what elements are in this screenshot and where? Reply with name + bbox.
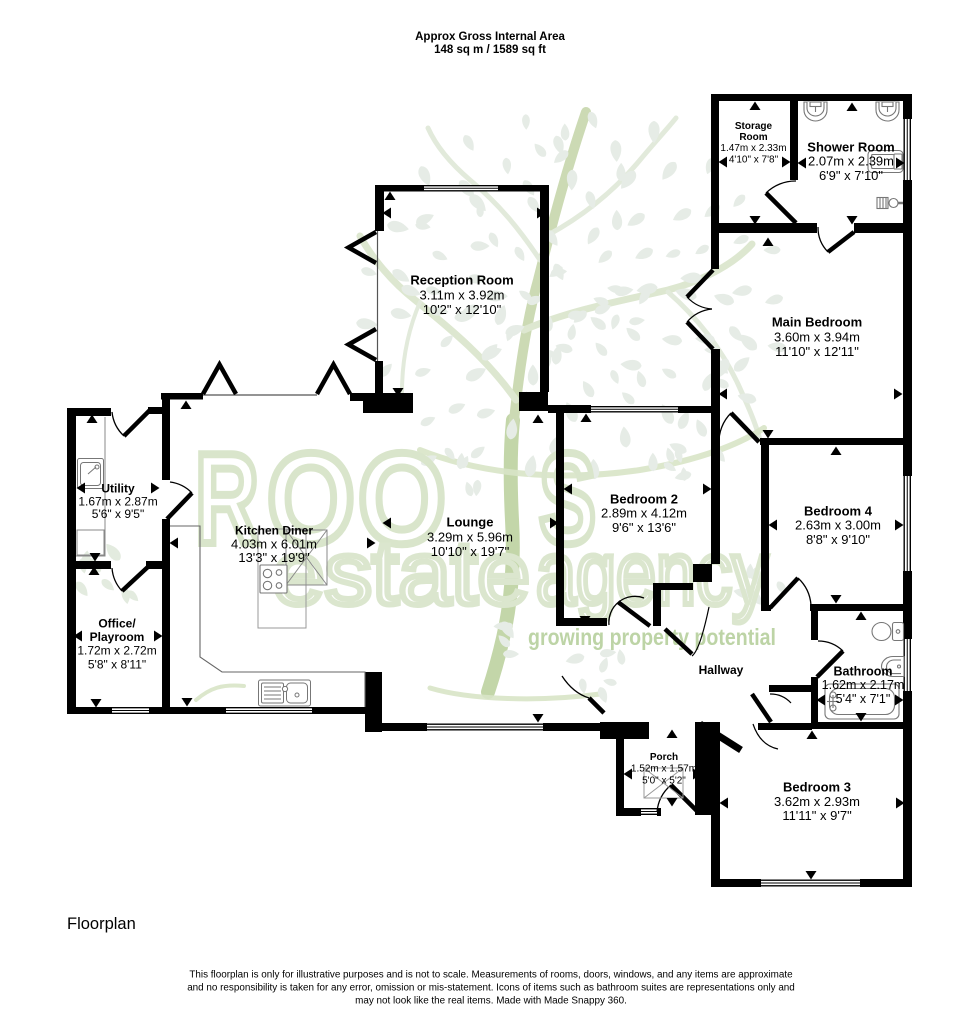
svg-text:Playroom: Playroom: [90, 630, 145, 644]
svg-text:1.62m x 2.17m: 1.62m x 2.17m: [822, 678, 905, 692]
svg-text:148 sq m / 1589 sq ft: 148 sq m / 1589 sq ft: [434, 44, 546, 56]
svg-text:Bedroom 2: Bedroom 2: [610, 492, 678, 507]
svg-text:Lounge: Lounge: [447, 515, 494, 530]
svg-text:Reception Room: Reception Room: [410, 273, 513, 288]
svg-text:1.47m x 2.33m: 1.47m x 2.33m: [720, 143, 786, 154]
svg-text:3.62m x 2.93m: 3.62m x 2.93m: [774, 794, 860, 809]
svg-text:8'8" x 9'10": 8'8" x 9'10": [806, 532, 870, 547]
svg-text:This floorplan is only for ill: This floorplan is only for illustrative …: [189, 970, 793, 981]
svg-text:13'3" x 19'9": 13'3" x 19'9": [238, 550, 310, 565]
svg-text:Bedroom 3: Bedroom 3: [783, 780, 851, 795]
svg-text:Main Bedroom: Main Bedroom: [772, 315, 862, 330]
svg-text:agency: agency: [536, 524, 768, 624]
svg-text:11'11" x 9'7": 11'11" x 9'7": [782, 808, 852, 823]
svg-text:3.60m x 3.94m: 3.60m x 3.94m: [774, 330, 860, 345]
svg-text:9'6" x 13'6": 9'6" x 13'6": [612, 520, 676, 535]
svg-text:Floorplan: Floorplan: [67, 915, 136, 933]
svg-text:10'10" x 19'7": 10'10" x 19'7": [431, 544, 510, 559]
svg-text:Bedroom 4: Bedroom 4: [804, 504, 873, 519]
svg-text:Office/: Office/: [98, 617, 136, 631]
svg-text:5'0" x 5'2": 5'0" x 5'2": [642, 776, 686, 787]
svg-text:Kitchen Diner: Kitchen Diner: [235, 524, 313, 538]
svg-text:5'8" x 8'11": 5'8" x 8'11": [88, 658, 146, 672]
svg-text:6'9" x 7'10": 6'9" x 7'10": [819, 168, 883, 183]
svg-text:Porch: Porch: [650, 752, 678, 763]
svg-text:2.63m x 3.00m: 2.63m x 3.00m: [795, 518, 881, 533]
svg-text:growing property potential: growing property potential: [528, 624, 776, 650]
svg-text:and no responsibility is taken: and no responsibility is taken for any e…: [187, 983, 795, 994]
svg-text:Bathroom: Bathroom: [833, 665, 892, 679]
svg-text:1.52m x 1.57m: 1.52m x 1.57m: [631, 764, 697, 775]
svg-text:2.07m x 2.39m: 2.07m x 2.39m: [808, 154, 894, 169]
svg-text:1.72m x 2.72m: 1.72m x 2.72m: [77, 644, 156, 658]
svg-text:3.29m x 5.96m: 3.29m x 5.96m: [427, 530, 513, 545]
svg-text:Utility: Utility: [101, 482, 135, 496]
svg-text:5'6" x 9'5": 5'6" x 9'5": [92, 507, 144, 521]
svg-text:2.89m x 4.12m: 2.89m x 4.12m: [601, 506, 687, 521]
svg-text:Approx Gross Internal Area: Approx Gross Internal Area: [415, 31, 565, 43]
svg-text:4'10" x 7'8": 4'10" x 7'8": [729, 155, 779, 166]
svg-text:Shower Room: Shower Room: [807, 140, 894, 155]
svg-text:10'2" x 12'10": 10'2" x 12'10": [423, 302, 502, 317]
svg-text:Room: Room: [739, 132, 767, 143]
svg-text:5'4" x 7'1": 5'4" x 7'1": [836, 692, 891, 706]
svg-text:11'10" x 12'11": 11'10" x 12'11": [775, 344, 859, 359]
svg-text:Storage: Storage: [735, 121, 773, 132]
svg-text:Hallway: Hallway: [699, 663, 744, 677]
svg-text:3.11m x 3.92m: 3.11m x 3.92m: [419, 288, 504, 303]
svg-text:may not look like the real ite: may not look like the real items. Made w…: [355, 996, 627, 1007]
